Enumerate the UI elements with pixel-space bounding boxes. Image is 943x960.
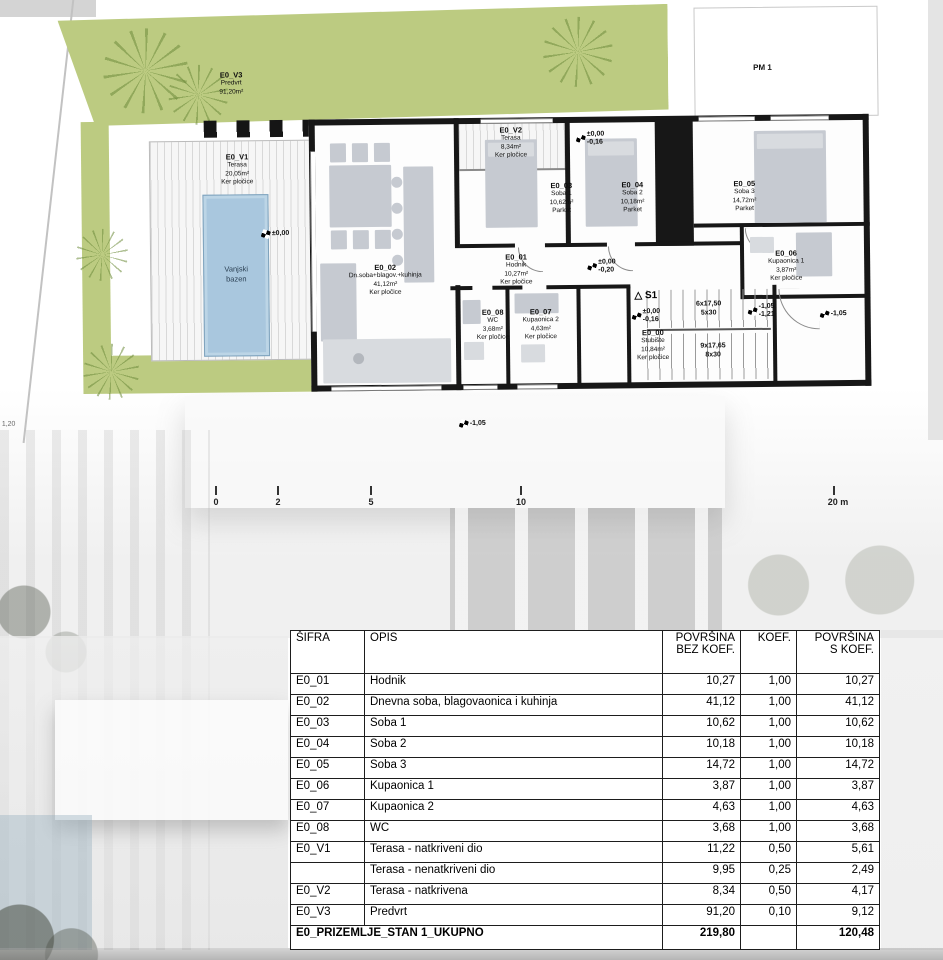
cell-koef: 1,00	[741, 800, 797, 821]
room-area: 91,20m²	[219, 88, 243, 96]
window	[771, 115, 829, 121]
cell-desc: Kupaonica 1	[365, 779, 663, 800]
scale-tick	[277, 486, 279, 495]
window	[463, 385, 497, 390]
scale-tick	[215, 486, 217, 495]
cell-desc: Terasa - natkrivena	[365, 884, 663, 905]
area-table: ŠIFRA OPIS POVRŠINA BEZ KOEF. KOEF. POVR…	[290, 630, 880, 950]
cell-koef: 0,25	[741, 863, 797, 884]
cell-desc: Hodnik	[365, 674, 663, 695]
background-render-lower-house	[0, 636, 288, 948]
label-wc: E0_08 WC 3,68m² Ker pločice	[477, 308, 510, 342]
room-floor: Ker pločice	[523, 333, 559, 342]
label-hodnik: E0_01 Hodnik 10,27m² Ker pločice	[500, 252, 533, 286]
background-render-right-of-table	[881, 630, 943, 950]
table-row: E0_08 WC 3,68 1,00 3,68	[291, 821, 880, 842]
cell-koef: 0,10	[741, 905, 797, 926]
cell-area: 4,63	[663, 800, 741, 821]
room-floor: Ker pločice	[349, 288, 422, 297]
section-marker-s1: △ S1	[634, 290, 657, 301]
furniture-chair	[331, 230, 347, 249]
cell-area: 11,22	[663, 842, 741, 863]
level-marker: -1,05	[821, 310, 847, 318]
table-row: E0_01 Hodnik 10,27 1,00 10,27	[291, 674, 880, 695]
cell-total-area-koef: 120,48	[797, 926, 880, 950]
stair-run-2: 9x17,65 8x30	[700, 341, 726, 359]
cell-code: E0_V1	[291, 842, 365, 863]
window	[331, 385, 441, 391]
cell-total-label: E0_PRIZEMLJE_STAN 1_UKUPNO	[291, 926, 663, 950]
cell-koef: 1,00	[741, 695, 797, 716]
scale-label: 20 m	[828, 497, 849, 507]
cell-code: E0_07	[291, 800, 365, 821]
scale-tick	[520, 486, 522, 495]
room-name: Kupaonica 1	[768, 258, 804, 267]
level-value: ±0,00	[643, 308, 661, 316]
level-marker: ±0,00	[262, 230, 290, 238]
cell-area-koef: 10,62	[797, 716, 880, 737]
cell-koef: 1,00	[741, 758, 797, 779]
cell-code: E0_01	[291, 674, 365, 695]
cell-code	[291, 863, 365, 884]
label-soba3: E0_05 Soba 3 14,72m² Parket	[732, 179, 756, 213]
background-render-lower-balcony	[55, 700, 288, 820]
furniture-stool	[392, 203, 403, 214]
furniture-dining-table	[329, 165, 392, 228]
room-area: 10,62m²	[550, 198, 574, 206]
tree-icon	[543, 16, 614, 87]
room-floor: Ker pločice	[221, 178, 253, 186]
stair-dim: 8x30	[700, 350, 725, 359]
scale-tick	[833, 486, 835, 495]
level-icon	[261, 229, 271, 239]
wall	[740, 225, 745, 299]
level-icon	[459, 419, 469, 429]
cell-area: 10,27	[663, 674, 741, 695]
cell-area-koef: 9,12	[797, 905, 880, 926]
level-value: -1,05	[831, 310, 847, 318]
tree-icon	[76, 229, 129, 282]
scale-label: 5	[368, 497, 373, 507]
cell-total-koef	[741, 926, 797, 950]
label-terrace-v1: E0_V1 Terasa 20,05m² Ker pločice	[221, 152, 254, 186]
label-stubiste: E0_00 Stubište 10,84m² Ker pločice	[637, 328, 670, 362]
cell-koef: 1,00	[741, 821, 797, 842]
cell-desc: Terasa - natkriveni dio	[365, 842, 663, 863]
floor-plan: E0_V3 Predvrt 91,20m² PM 1 E0_V1 Terasa …	[0, 0, 943, 545]
room-name: Dn.soba+blagov.+kuhinja	[349, 272, 422, 281]
level-value: -1,05	[470, 420, 486, 428]
cell-desc: Kupaonica 2	[365, 800, 663, 821]
cell-desc: Soba 1	[365, 716, 663, 737]
fixture-sink	[521, 344, 545, 362]
room-area: 10,27m²	[500, 270, 532, 278]
label-kupaonica2: E0_07 Kupaonica 2 4,63m² Ker pločice	[523, 307, 559, 341]
room-floor: Parket	[733, 205, 757, 213]
cell-area-koef: 4,17	[797, 884, 880, 905]
cell-area-koef: 2,49	[797, 863, 880, 884]
room-area: 10,84m²	[637, 345, 669, 353]
room-area: 14,72m²	[733, 196, 757, 204]
cell-code: E0_V3	[291, 905, 365, 926]
level-icon	[632, 311, 642, 321]
cell-area: 8,34	[663, 884, 741, 905]
table-row: E0_02 Dnevna soba, blagovaonica i kuhinj…	[291, 695, 880, 716]
room-code: E0_07	[523, 307, 559, 317]
level-value: ±0,00	[598, 258, 616, 266]
cell-area: 9,95	[663, 863, 741, 884]
table-header-row: ŠIFRA OPIS POVRŠINA BEZ KOEF. KOEF. POVR…	[291, 631, 880, 674]
cell-code: E0_04	[291, 737, 365, 758]
table-total-row: E0_PRIZEMLJE_STAN 1_UKUPNO 219,80 120,48	[291, 926, 880, 950]
level-value: -1,05	[759, 303, 775, 311]
cell-code: E0_03	[291, 716, 365, 737]
room-code: E0_03	[549, 181, 573, 191]
room-name: Soba 2	[620, 190, 644, 198]
furniture-chair	[374, 143, 390, 162]
room-name: Stubište	[637, 337, 669, 345]
label-soba1: E0_03 Soba 1 10,62m² Parket	[549, 181, 573, 215]
level-note-left: 1,20	[2, 421, 16, 428]
cell-code: E0_02	[291, 695, 365, 716]
level-icon	[587, 261, 597, 271]
cell-desc: Predvrt	[365, 905, 663, 926]
cell-area: 91,20	[663, 905, 741, 926]
cell-desc: Terasa - nenatkriveni dio	[365, 863, 663, 884]
room-code: E0_00	[637, 328, 669, 338]
label-parking: PM 1	[753, 63, 772, 72]
table-row: E0_V2 Terasa - natkrivena 8,34 0,50 4,17	[291, 884, 880, 905]
stair-dim: 9x17,65	[700, 341, 725, 350]
plan-sheet: { "plan": { "garden": {"code": "E0_V3", …	[0, 0, 943, 960]
room-name: Predvrt	[219, 80, 243, 88]
label-kupaonica1: E0_06 Kupaonica 1 3,87m² Ker pločice	[768, 249, 804, 283]
level-marker: -1,05	[460, 420, 486, 428]
cell-area-koef: 14,72	[797, 758, 880, 779]
level-icon	[748, 306, 758, 316]
cell-area: 3,87	[663, 779, 741, 800]
furniture-kitchen-counter	[323, 338, 451, 383]
level-value: -0,16	[643, 316, 661, 324]
window	[517, 384, 557, 389]
tree-icon	[83, 343, 140, 400]
cell-desc: Soba 3	[365, 758, 663, 779]
cell-area: 41,12	[663, 695, 741, 716]
window	[699, 116, 755, 122]
room-code: E0_04	[620, 180, 644, 190]
cell-area-koef: 3,87	[797, 779, 880, 800]
room-floor: Ker pločice	[637, 354, 669, 362]
label-terrace-v2: E0_V2 Terasa 8,34m² Ker pločice	[495, 125, 528, 159]
wall-closet	[655, 120, 694, 246]
cell-desc: Dnevna soba, blagovaonica i kuhinja	[365, 695, 663, 716]
cell-area: 10,62	[663, 716, 741, 737]
table-row: E0_V3 Predvrt 91,20 0,10 9,12	[291, 905, 880, 926]
table-row: E0_05 Soba 3 14,72 1,00 14,72	[291, 758, 880, 779]
cell-area-koef: 3,68	[797, 821, 880, 842]
cell-code: E0_08	[291, 821, 365, 842]
furniture-stool	[391, 177, 402, 188]
level-marker: ±0,00 -0,16	[577, 131, 605, 147]
col-header-sifra: ŠIFRA	[291, 631, 365, 674]
cell-desc: Soba 2	[365, 737, 663, 758]
cell-area: 10,18	[663, 737, 741, 758]
furniture-sink	[353, 353, 364, 364]
background-render-plants-corner	[0, 855, 130, 960]
room-code: E0_V1	[221, 152, 253, 162]
cell-koef: 0,50	[741, 884, 797, 905]
background-render-foliage-right	[690, 535, 943, 635]
wall	[460, 244, 515, 249]
window	[481, 118, 553, 124]
cell-koef: 1,00	[741, 737, 797, 758]
cell-area-koef: 10,27	[797, 674, 880, 695]
room-floor: Ker pločice	[495, 151, 527, 159]
col-header-koef: KOEF.	[741, 631, 797, 674]
level-value: ±0,00	[272, 230, 290, 238]
stair-run-1: 6x17,50 5x30	[696, 299, 722, 317]
room-code: E0_05	[732, 179, 756, 189]
level-marker: ±0,00 -0,20	[588, 258, 616, 274]
room-name: Kupaonica 2	[523, 316, 559, 325]
room-code: E0_06	[768, 249, 804, 259]
scale-label: 10	[516, 497, 526, 507]
background-render-pool-water	[0, 815, 92, 950]
room-code: E0_01	[500, 252, 532, 262]
col-header-opis: OPIS	[365, 631, 663, 674]
furniture-pillow	[757, 133, 823, 149]
table-row: E0_06 Kupaonica 1 3,87 1,00 3,87	[291, 779, 880, 800]
table-row: E0_07 Kupaonica 2 4,63 1,00 4,63	[291, 800, 880, 821]
cell-code: E0_05	[291, 758, 365, 779]
room-floor: Parket	[550, 207, 574, 215]
fixture-sink	[464, 342, 484, 360]
furniture-chair	[330, 143, 346, 162]
cell-area-koef: 5,61	[797, 842, 880, 863]
room-code: E0_V3	[219, 70, 243, 80]
wall	[450, 286, 472, 290]
furniture-stool	[392, 229, 403, 240]
cell-koef: 1,00	[741, 716, 797, 737]
stair-dim: 5x30	[696, 308, 721, 317]
room-name: Soba 3	[732, 188, 756, 196]
cell-code: E0_06	[291, 779, 365, 800]
label-garden: E0_V3 Predvrt 91,20m²	[219, 70, 243, 96]
table-row: Terasa - nenatkriveni dio 9,95 0,25 2,49	[291, 863, 880, 884]
room-floor: Ker pločice	[500, 278, 532, 286]
scale-tick	[370, 486, 372, 495]
scale-label: 0	[213, 497, 218, 507]
col-header-povrsina-bez: POVRŠINA BEZ KOEF.	[663, 631, 741, 674]
room-name: Soba 1	[549, 190, 573, 198]
scale-label: 2	[275, 497, 280, 507]
furniture-chair	[353, 230, 369, 249]
cell-area-koef: 4,63	[797, 800, 880, 821]
background-render-plants-left	[0, 540, 120, 700]
room-code: E0_V2	[495, 125, 527, 135]
cell-desc: WC	[365, 821, 663, 842]
cell-koef: 0,50	[741, 842, 797, 863]
table-row: E0_03 Soba 1 10,62 1,00 10,62	[291, 716, 880, 737]
cell-area-koef: 41,12	[797, 695, 880, 716]
table-row: E0_V1 Terasa - natkriveni dio 11,22 0,50…	[291, 842, 880, 863]
cell-area-koef: 10,18	[797, 737, 880, 758]
site-boundary-line	[23, 0, 75, 443]
table-row: E0_04 Soba 2 10,18 1,00 10,18	[291, 737, 880, 758]
furniture-chair	[375, 230, 391, 249]
cell-total-area: 219,80	[663, 926, 741, 950]
label-soba2: E0_04 Soba 2 10,18m² Parket	[620, 180, 644, 214]
level-value: -0,16	[587, 138, 605, 146]
stair-dim: 6x17,50	[696, 299, 721, 308]
furniture-chair	[352, 143, 368, 162]
cell-koef: 1,00	[741, 779, 797, 800]
wall	[545, 243, 607, 248]
level-value: ±0,00	[587, 131, 605, 139]
room-floor: Parket	[621, 206, 645, 214]
label-living: E0_02 Dn.soba+blagov.+kuhinja 41,12m² Ke…	[349, 263, 422, 298]
label-pool: Vanjski bazen	[224, 264, 248, 284]
cell-koef: 1,00	[741, 674, 797, 695]
level-icon	[576, 133, 586, 143]
room-area: 20,05m²	[221, 170, 253, 178]
parking-outline	[693, 6, 878, 118]
room-floor: Ker pločice	[768, 274, 804, 283]
level-icon	[820, 309, 830, 319]
cell-area: 14,72	[663, 758, 741, 779]
room-code: E0_08	[477, 308, 509, 318]
level-value: -0,20	[598, 266, 616, 274]
cell-code: E0_V2	[291, 884, 365, 905]
room-area: 10,18m²	[621, 198, 645, 206]
level-marker: ±0,00 -0,16	[633, 308, 661, 324]
cell-area: 3,68	[663, 821, 741, 842]
col-header-povrsina-s: POVRŠINA S KOEF.	[797, 631, 880, 674]
level-value: -1,21	[759, 311, 775, 319]
room-floor: Ker pločice	[477, 333, 509, 341]
level-marker: -1,05 -1,21	[749, 303, 775, 319]
